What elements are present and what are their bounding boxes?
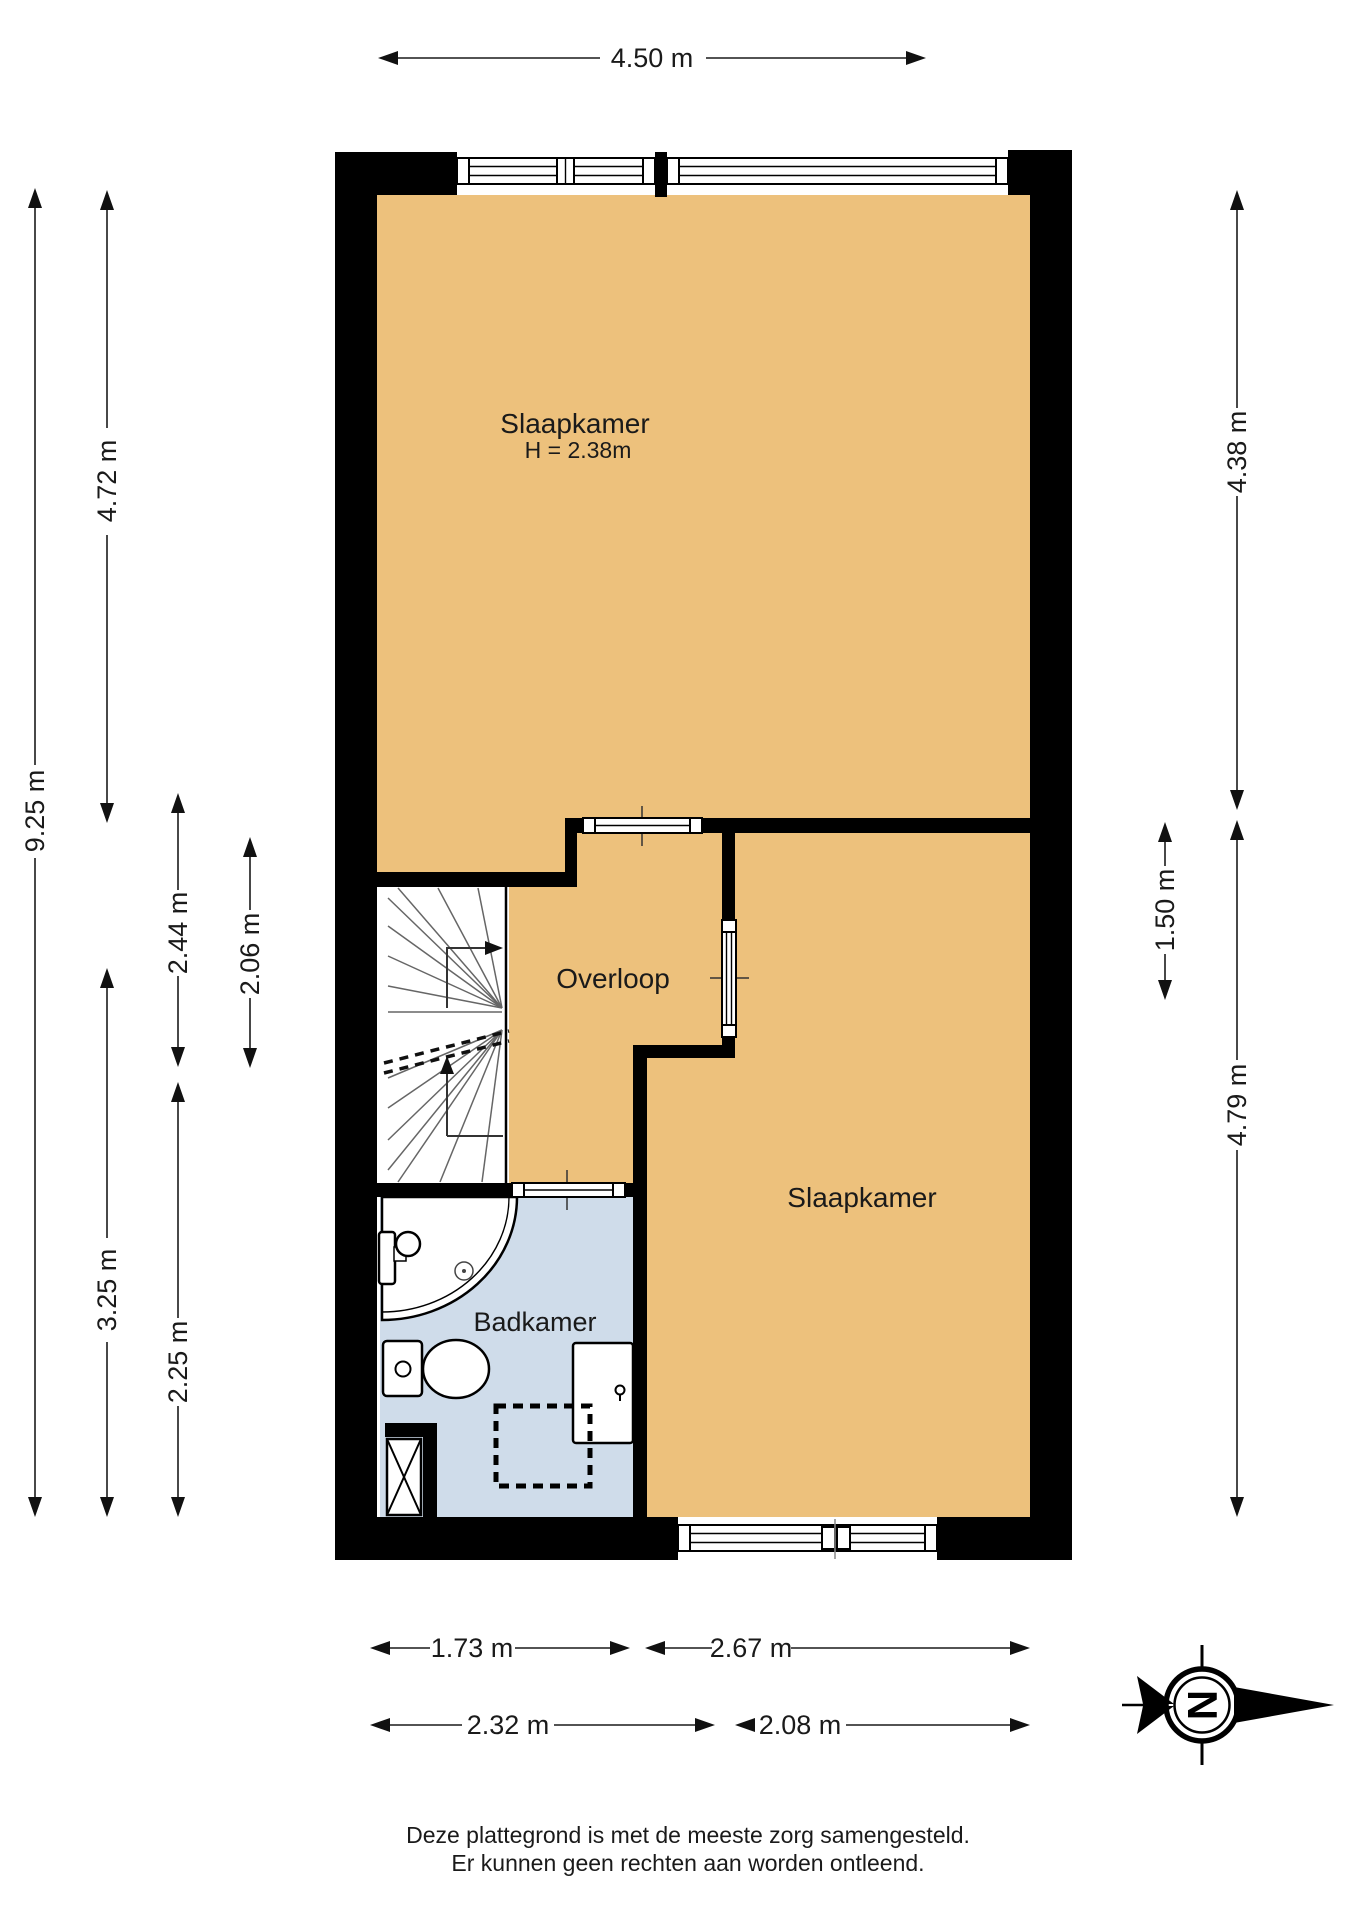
wall-bottom-left xyxy=(335,1517,678,1560)
bedroom-top-floor-left xyxy=(377,818,565,874)
dim-label: 2.67 m xyxy=(710,1633,793,1663)
wall-right xyxy=(1030,150,1072,1560)
window-top-right xyxy=(667,158,1008,184)
dim-label: 4.38 m xyxy=(1222,411,1252,494)
dim-label: 4.72 m xyxy=(92,440,122,523)
window-bottom xyxy=(678,1519,937,1559)
dim-label: 4.50 m xyxy=(611,43,694,73)
dim-left-325: 3.25 m xyxy=(92,968,122,1517)
stair-arrow-right xyxy=(485,941,503,955)
dim-label: 2.06 m xyxy=(235,913,265,996)
bedroom-bottom-floor-upper xyxy=(735,833,1030,1058)
stair-treads-upper xyxy=(388,888,502,1012)
toilet-button xyxy=(396,1362,411,1377)
wall-shaft-right xyxy=(423,1423,437,1517)
dim-left-244: 2.44 m xyxy=(163,793,193,1067)
dim-label: 2.08 m xyxy=(759,1710,842,1740)
dim-left-225: 2.25 m xyxy=(163,1082,193,1517)
bedroom-top-floor xyxy=(377,195,1030,818)
wall-top-pillar xyxy=(655,152,667,197)
wall-landing-bathroom-bit xyxy=(625,1183,647,1197)
footer-disclaimer: Deze plattegrond is met de meeste zorg s… xyxy=(406,1822,970,1876)
staircase xyxy=(384,888,509,1182)
bedroom-bottom-floor-main xyxy=(647,1058,1030,1517)
dim-left-925: 9.25 m xyxy=(20,188,50,1517)
dim-label: 1.50 m xyxy=(1150,869,1180,952)
shower-mixer xyxy=(379,1232,395,1284)
landing-label: Overloop xyxy=(556,963,670,994)
dim-top-450: 4.50 m xyxy=(378,43,926,73)
dim-label: 9.25 m xyxy=(20,770,50,853)
stair-treads-lower xyxy=(388,1030,502,1182)
dim-right-438: 4.38 m xyxy=(1222,190,1252,810)
wall-bedroom-top-step xyxy=(565,818,577,887)
footer-line-2: Er kunnen geen rechten aan worden ontlee… xyxy=(451,1850,924,1876)
dim-label: 2.25 m xyxy=(163,1321,193,1404)
dim-label: 2.32 m xyxy=(467,1710,550,1740)
shower-drain-dot xyxy=(462,1269,466,1273)
dim-label: 2.44 m xyxy=(163,892,193,975)
dim-left-206: 2.06 m xyxy=(235,837,265,1068)
wall-bedroom-top-bottom-left xyxy=(360,872,577,887)
dim-bottom-208: 2.08 m xyxy=(735,1710,1030,1740)
bathroom-label: Badkamer xyxy=(473,1307,596,1337)
compass-north-letter: N xyxy=(1179,1690,1226,1720)
bedroom-top-height-note: H = 2.38m xyxy=(525,437,632,463)
floor-plan: Slaapkamer H = 2.38m Overloop Slaapkamer… xyxy=(0,0,1358,1920)
wall-landing-jog xyxy=(633,1045,735,1058)
dim-bottom-173: 1.73 m xyxy=(370,1633,630,1663)
wall-left xyxy=(335,152,377,1560)
dim-label: 1.73 m xyxy=(431,1633,514,1663)
landing-floor-upper xyxy=(577,833,722,889)
window-top-left xyxy=(457,158,655,184)
bedroom-top-label: Slaapkamer xyxy=(500,408,649,439)
wall-bottom-right xyxy=(937,1517,1072,1560)
footer-line-1: Deze plattegrond is met de meeste zorg s… xyxy=(406,1822,970,1848)
shower-head xyxy=(396,1232,420,1256)
compass-rose: N xyxy=(1122,1645,1334,1765)
bedroom-bottom-label: Slaapkamer xyxy=(787,1182,936,1213)
wall-bedroom-top-bottom-right xyxy=(702,818,1030,833)
wall-landing-right-upper xyxy=(722,833,735,920)
dim-right-479: 4.79 m xyxy=(1222,820,1252,1517)
dim-bottom-232: 2.32 m xyxy=(370,1710,715,1740)
wall-stairwell-bottom xyxy=(360,1183,512,1197)
dim-left-472: 4.72 m xyxy=(92,190,122,823)
landing-floor-lower xyxy=(509,1045,633,1183)
compass-north-letter-group: N xyxy=(1179,1690,1226,1720)
dim-label: 4.79 m xyxy=(1222,1064,1252,1147)
dim-label: 3.25 m xyxy=(92,1249,122,1332)
wall-bathroom-bedroom-divider xyxy=(633,1045,647,1517)
dim-right-150: 1.50 m xyxy=(1150,822,1180,1000)
toilet-bowl xyxy=(423,1340,489,1398)
dim-bottom-267: 2.67 m xyxy=(645,1633,1030,1663)
duct-shaft xyxy=(387,1439,421,1515)
compass-needle-north xyxy=(1234,1687,1334,1723)
